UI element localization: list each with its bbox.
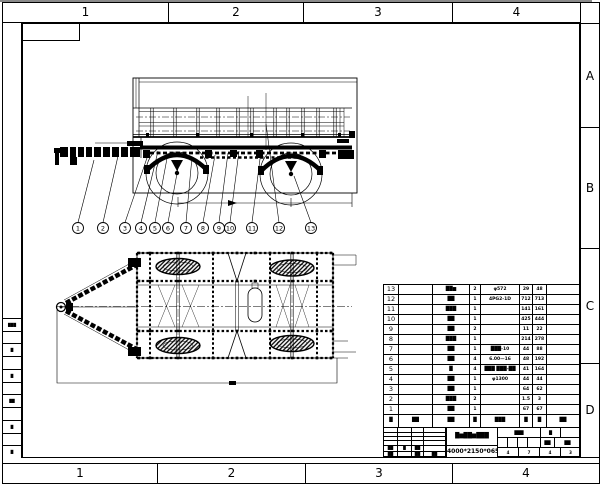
parts-cell-name: ██ xyxy=(433,405,470,415)
info-cell: 4 xyxy=(498,448,519,457)
parts-cell-qty: 1 xyxy=(470,345,481,355)
parts-cell-spec: ███ ███-██ xyxy=(481,365,520,375)
parts-cell-code xyxy=(399,395,433,405)
parts-cell-rem xyxy=(547,305,579,315)
parts-cell-w2: 278 xyxy=(533,335,547,345)
callout-number: 4 xyxy=(139,225,143,233)
parts-cell-spec: 4PG2-1D xyxy=(481,295,520,305)
parts-cell-no: 1 xyxy=(384,405,399,415)
parts-cell-no: 4 xyxy=(384,375,399,385)
parts-cell-w1: 48 xyxy=(520,355,533,365)
parts-cell-code xyxy=(399,335,433,345)
parts-cell-w2: 164 xyxy=(533,365,547,375)
info-row: ████ xyxy=(498,438,581,448)
parts-cell-code xyxy=(399,345,433,355)
title-block-revision-grid: ███████████ xyxy=(384,428,446,457)
info-cell xyxy=(518,438,528,448)
callout-number: 12 xyxy=(275,225,283,233)
parts-row: 3██16462 xyxy=(384,385,579,395)
parts-row: 10██1425444 xyxy=(384,315,579,325)
parts-cell-code xyxy=(399,405,433,415)
parts-cell-w1: 1.5 xyxy=(520,395,533,405)
parts-row: 11███1141161 xyxy=(384,305,579,315)
parts-cell-name: ██ xyxy=(433,385,470,395)
parts-cell-w1: 425 xyxy=(520,315,533,325)
callout-balloons: 12345678910111213 xyxy=(73,124,317,234)
parts-cell-w2: 22 xyxy=(533,325,547,335)
parts-cell-w1: 141 xyxy=(520,305,533,315)
title-block-info-grid: ████████4743 xyxy=(498,428,581,457)
parts-cell-code xyxy=(399,365,433,375)
info-cell xyxy=(508,438,518,448)
parts-cell-qty: 4 xyxy=(470,365,481,375)
callout-number: 8 xyxy=(201,225,205,233)
parts-cell-no: 11 xyxy=(384,305,399,315)
parts-cell-w1: 41 xyxy=(520,365,533,375)
parts-list-table: 13██▆2φ572294812██14PG2-1D71271311███114… xyxy=(383,284,580,429)
side-view xyxy=(54,78,357,207)
parts-cell-rem xyxy=(547,365,579,375)
parts-cell-rem xyxy=(547,395,579,405)
parts-cell-code xyxy=(399,315,433,325)
title-block: ███████████ █▆██▆███ 4000*2150*065 █████… xyxy=(383,427,580,458)
parts-row: 13██▆2φ5722948 xyxy=(384,285,579,295)
parts-cell-qty: 2 xyxy=(470,325,481,335)
drawing-title: █▆██▆███ xyxy=(447,428,497,446)
callout-number: 13 xyxy=(307,225,315,233)
parts-cell-name: ███ xyxy=(433,395,470,405)
info-cell: ██ xyxy=(541,438,555,448)
title-block-middle: █▆██▆███ 4000*2150*065 xyxy=(446,428,498,457)
parts-cell-qty: 1 xyxy=(470,405,481,415)
parts-cell-w2: 444 xyxy=(533,315,547,325)
parts-cell-no: 8 xyxy=(384,335,399,345)
parts-cell-rem xyxy=(547,335,579,345)
parts-cell-spec: ███-10 xyxy=(481,345,520,355)
parts-cell-rem xyxy=(547,355,579,365)
info-cell: 3 xyxy=(561,448,581,457)
callout-number: 2 xyxy=(101,225,105,233)
parts-cell-no: 13 xyxy=(384,285,399,295)
parts-cell-w1: 29 xyxy=(520,285,533,295)
parts-cell-w1: 64 xyxy=(520,385,533,395)
revision-cell: ██ xyxy=(412,452,424,457)
callout-number: 6 xyxy=(166,225,170,233)
revision-row: ██████ xyxy=(384,452,446,457)
parts-cell-name: ██▆ xyxy=(433,285,470,295)
parts-row: 1██16767 xyxy=(384,405,579,415)
parts-cell-spec xyxy=(481,385,520,395)
parts-cell-code xyxy=(399,355,433,365)
parts-cell-rem xyxy=(547,315,579,325)
parts-cell-w2: 161 xyxy=(533,305,547,315)
revision-cell xyxy=(398,452,412,457)
info-cell: ██ xyxy=(555,438,581,448)
parts-cell-rem xyxy=(547,385,579,395)
parts-row: 4██1φ13004444 xyxy=(384,375,579,385)
parts-row: 12██14PG2-1D712713 xyxy=(384,295,579,305)
info-cell: ███ xyxy=(498,428,541,438)
parts-cell-rem xyxy=(547,325,579,335)
parts-cell-code xyxy=(399,305,433,315)
parts-cell-spec: φ1300 xyxy=(481,375,520,385)
info-cell: 7 xyxy=(519,448,540,457)
parts-cell-w1: 67 xyxy=(520,405,533,415)
parts-cell-name: ██ xyxy=(433,315,470,325)
info-cell xyxy=(498,438,508,448)
callout-number: 11 xyxy=(248,225,256,233)
parts-cell-qty: 2 xyxy=(470,395,481,405)
info-row: ████ xyxy=(498,428,581,438)
parts-cell-code xyxy=(399,325,433,335)
parts-cell-spec xyxy=(481,405,520,415)
parts-row: 2███21.53 xyxy=(384,395,579,405)
parts-cell-spec: 6.00—16 xyxy=(481,355,520,365)
parts-cell-code xyxy=(399,295,433,305)
info-cell xyxy=(561,428,581,438)
parts-row: 9██21122 xyxy=(384,325,579,335)
plan-view xyxy=(57,252,357,385)
info-cell: █ xyxy=(541,428,561,438)
parts-cell-name: █ xyxy=(433,365,470,375)
parts-cell-no: 3 xyxy=(384,385,399,395)
parts-cell-w1: 44 xyxy=(520,375,533,385)
parts-cell-w2: 67 xyxy=(533,405,547,415)
parts-cell-no: 6 xyxy=(384,355,399,365)
info-cell xyxy=(528,438,541,448)
drawing-size-text: 4000*2150*065 xyxy=(447,446,497,458)
parts-row: 5█4███ ███-██41164 xyxy=(384,365,579,375)
parts-cell-name: ██ xyxy=(433,375,470,385)
parts-cell-name: ██ xyxy=(433,325,470,335)
parts-cell-name: ██ xyxy=(433,355,470,365)
parts-cell-no: 7 xyxy=(384,345,399,355)
parts-cell-name: ██ xyxy=(433,345,470,355)
parts-cell-w1: 214 xyxy=(520,335,533,345)
parts-cell-qty: 2 xyxy=(470,285,481,295)
drawing-sheet: 1234 1234 ABCD █████████ xyxy=(0,0,603,486)
callout-number: 10 xyxy=(226,225,234,233)
parts-cell-name: ██ xyxy=(433,295,470,305)
callout-number: 5 xyxy=(153,225,157,233)
parts-cell-rem xyxy=(547,295,579,305)
parts-cell-rem xyxy=(547,405,579,415)
parts-cell-no: 12 xyxy=(384,295,399,305)
parts-cell-qty: 1 xyxy=(470,385,481,395)
parts-cell-w2: 44 xyxy=(533,375,547,385)
parts-cell-spec xyxy=(481,305,520,315)
parts-cell-w1: 44 xyxy=(520,345,533,355)
parts-cell-w1: 712 xyxy=(520,295,533,305)
parts-cell-rem xyxy=(547,285,579,295)
parts-cell-qty: 1 xyxy=(470,375,481,385)
parts-cell-qty: 1 xyxy=(470,305,481,315)
callout-number: 3 xyxy=(123,225,127,233)
parts-cell-no: 10 xyxy=(384,315,399,325)
parts-cell-spec xyxy=(481,335,520,345)
parts-cell-qty: 4 xyxy=(470,355,481,365)
parts-cell-spec: φ572 xyxy=(481,285,520,295)
info-cell: 4 xyxy=(540,448,561,457)
revision-cell: ██ xyxy=(384,452,398,457)
parts-cell-name: ███ xyxy=(433,305,470,315)
callout-number: 1 xyxy=(76,225,80,233)
parts-cell-w2: 88 xyxy=(533,345,547,355)
parts-cell-spec xyxy=(481,395,520,405)
parts-cell-code xyxy=(399,285,433,295)
parts-cell-w2: 3 xyxy=(533,395,547,405)
parts-cell-spec xyxy=(481,315,520,325)
parts-cell-w2: 62 xyxy=(533,385,547,395)
info-row: 4743 xyxy=(498,448,581,457)
parts-cell-qty: 1 xyxy=(470,295,481,305)
parts-cell-qty: 1 xyxy=(470,335,481,345)
parts-cell-w2: 713 xyxy=(533,295,547,305)
callout-number: 9 xyxy=(217,225,221,233)
parts-cell-no: 2 xyxy=(384,395,399,405)
parts-row: 8███1214278 xyxy=(384,335,579,345)
parts-cell-code xyxy=(399,375,433,385)
revision-cell: ██ xyxy=(424,452,446,457)
parts-cell-w1: 11 xyxy=(520,325,533,335)
parts-cell-no: 9 xyxy=(384,325,399,335)
parts-cell-code xyxy=(399,385,433,395)
parts-row: 7██1███-104488 xyxy=(384,345,579,355)
parts-cell-no: 5 xyxy=(384,365,399,375)
parts-cell-spec xyxy=(481,325,520,335)
parts-cell-qty: 1 xyxy=(470,315,481,325)
parts-row: 6██46.00—1648192 xyxy=(384,355,579,365)
parts-cell-w2: 48 xyxy=(533,285,547,295)
parts-cell-rem xyxy=(547,375,579,385)
callout-number: 7 xyxy=(184,225,188,233)
parts-cell-name: ███ xyxy=(433,335,470,345)
parts-cell-rem xyxy=(547,345,579,355)
parts-cell-w2: 192 xyxy=(533,355,547,365)
